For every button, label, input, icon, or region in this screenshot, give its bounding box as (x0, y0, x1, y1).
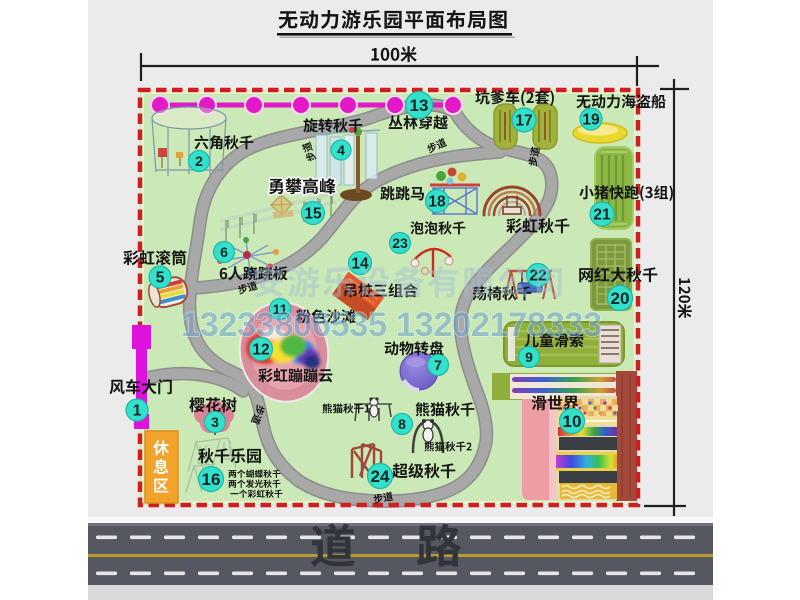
svg-text:23: 23 (392, 235, 408, 251)
svg-text:18: 18 (428, 194, 446, 211)
svg-text:17: 17 (515, 113, 532, 130)
svg-text:21: 21 (593, 207, 611, 224)
svg-text:9: 9 (525, 349, 533, 365)
svg-text:2: 2 (195, 153, 203, 169)
svg-text:10: 10 (563, 412, 582, 431)
svg-text:13: 13 (410, 96, 429, 115)
svg-text:16: 16 (202, 470, 221, 489)
svg-text:20: 20 (611, 289, 630, 308)
svg-text:7: 7 (434, 357, 442, 373)
svg-text:5: 5 (156, 270, 165, 287)
svg-text:6: 6 (220, 244, 228, 260)
svg-text:15: 15 (304, 206, 322, 223)
svg-text:1: 1 (133, 403, 142, 420)
svg-text:12: 12 (252, 342, 269, 359)
svg-text:13233806535 13202178333: 13233806535 13202178333 (181, 306, 602, 344)
svg-text:3: 3 (211, 414, 219, 430)
svg-text:8: 8 (398, 416, 406, 432)
svg-text:24: 24 (371, 467, 390, 486)
svg-text:19: 19 (582, 112, 600, 129)
svg-text:4: 4 (337, 142, 345, 158)
